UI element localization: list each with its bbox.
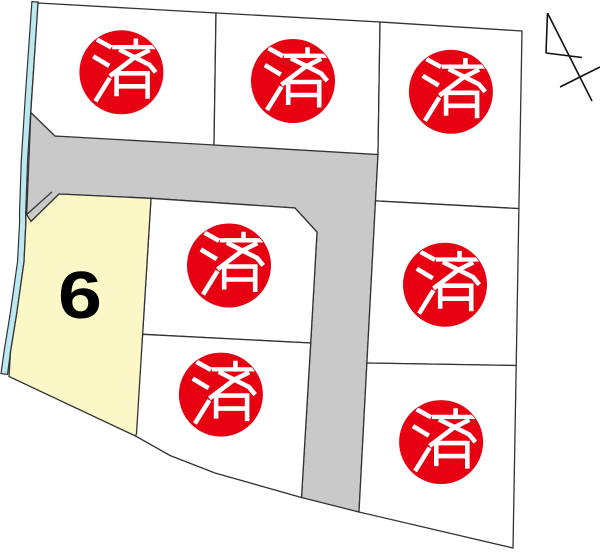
svg-text:6: 6 xyxy=(58,258,102,333)
